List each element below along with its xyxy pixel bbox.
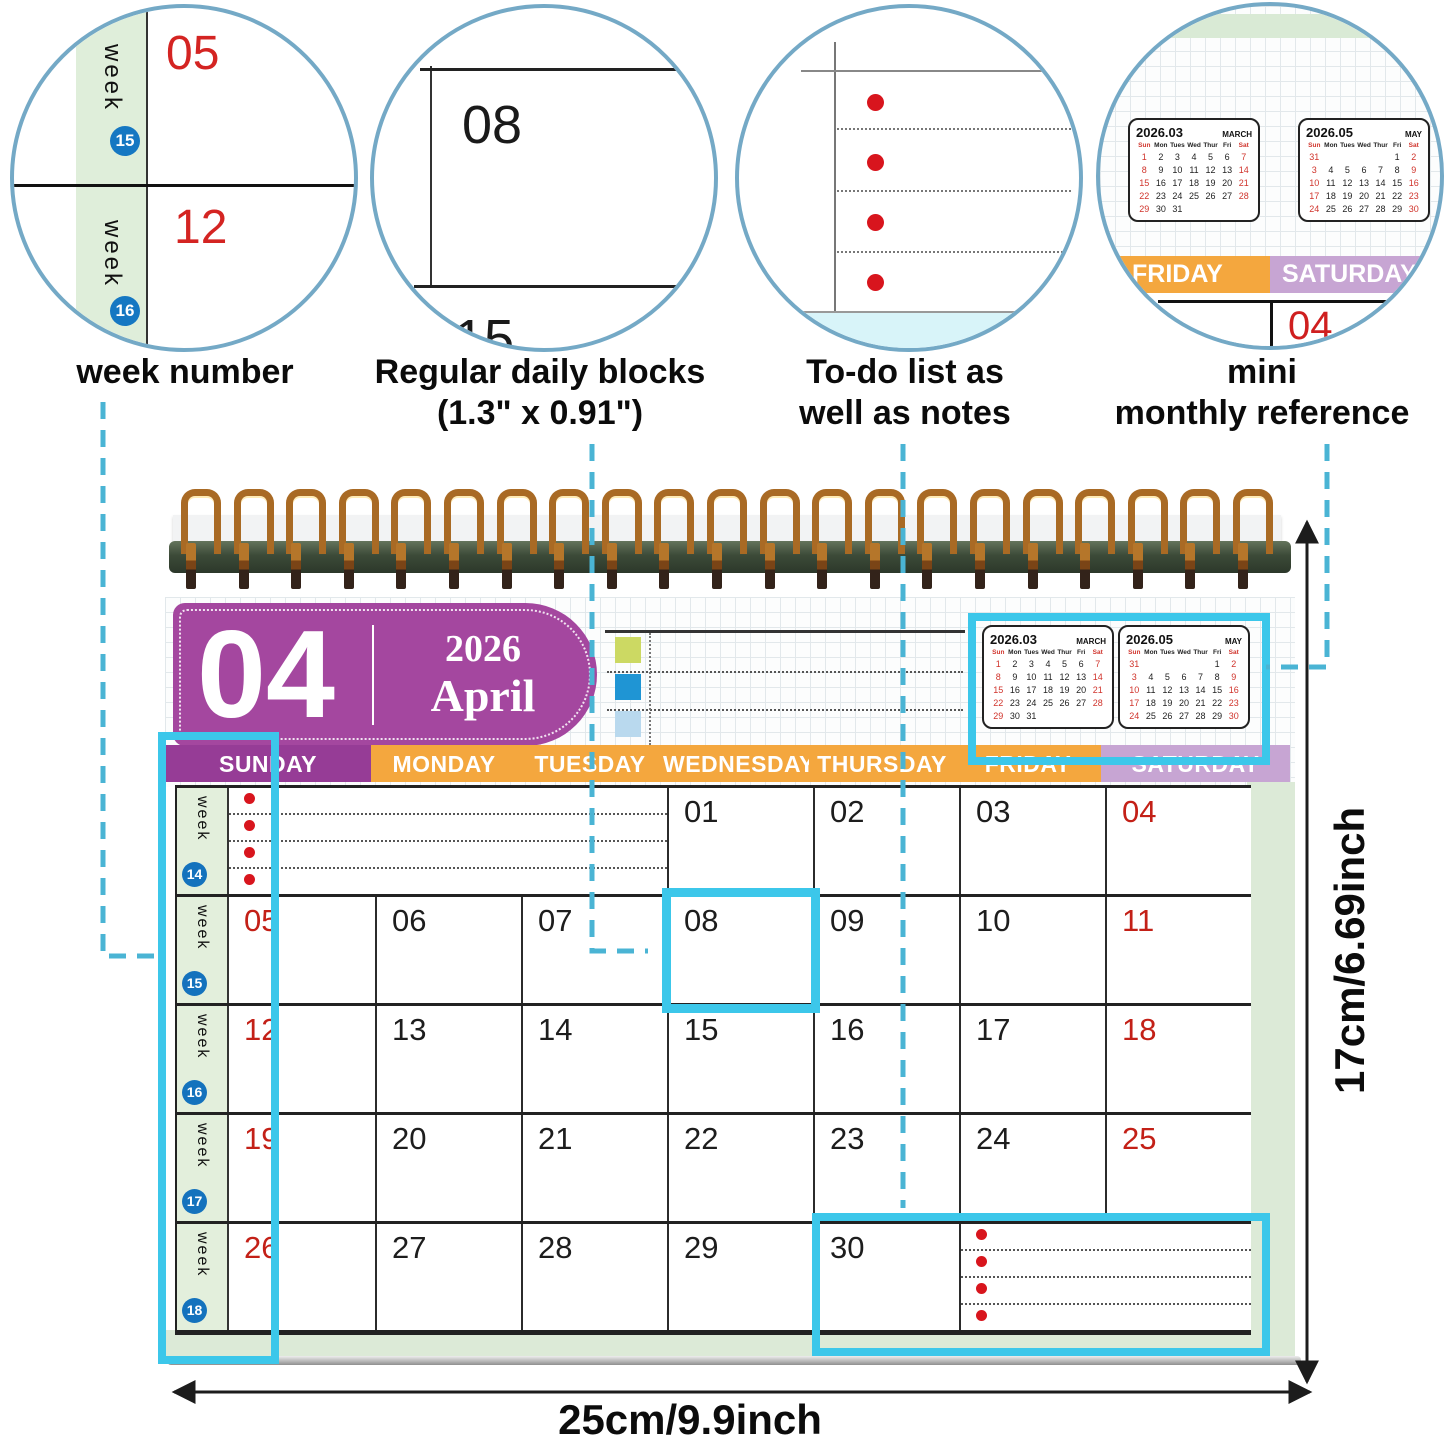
note-line [229,842,667,869]
week-number-badge: 16 [110,296,140,326]
callout-label-week-number: week number [35,352,335,393]
date-cell-20: 20 [375,1115,521,1221]
height-dimension-label: 17cm/6.69inch [1320,640,1380,1260]
highlight-mini-calendars: 2026.03MARCHSunMonTuesWedThurFriSat12345… [968,613,1270,765]
mini-calendar-may: 2026.05MAYSunMonTuesWedThurFriSat3112345… [1118,625,1250,729]
mini-calendar-date-row: 22232425262728 [1136,190,1252,203]
connector-week-number [103,402,154,956]
spiral-loop [391,489,421,589]
date-number: 08 [684,903,718,939]
date-number: 10 [976,903,1010,939]
spiral-loop [1075,489,1105,589]
spiral-loop [707,489,737,589]
week-label: week [98,44,126,112]
week-label: week [98,220,126,288]
mini-calendar-date-row: 891011121314 [1136,164,1252,177]
mini-calendar-date-row: 293031 [1136,203,1252,216]
date-number: 15 [454,308,514,352]
mini-calendar-march: 2026.03MARCHSunMonTuesWedThurFriSat12345… [1128,118,1260,222]
date-number: 12 [174,200,227,255]
callout-circle-daily-blocks: 08 15 [370,4,718,352]
day-header-thursday: THURSDAY [809,745,955,782]
date-number: 16 [830,1012,864,1048]
spiral-loop [1128,489,1158,589]
date-cell-07: 07 [521,897,667,1003]
mini-calendar-weekday-row: SunMonTuesWedThurFriSat [1136,140,1252,151]
date-number: 04 [1288,304,1333,349]
date-cell-03: 03 [959,788,1105,894]
date-cell-23: 23 [813,1115,959,1221]
day-header-friday: FRIDAY [1118,256,1284,293]
grid-line [430,66,432,288]
week-row: week1401020304 [177,788,1249,897]
grid-line [14,184,354,187]
month-pill: 04 2026 April [173,603,597,746]
date-cell-01: 01 [667,788,813,894]
stand-bar [167,1356,1301,1365]
date-number: 28 [538,1230,572,1266]
date-cell-24: 24 [959,1115,1105,1221]
date-cell-22: 22 [667,1115,813,1221]
date-cell-11: 11 [1105,897,1251,1003]
todo-bullet [867,94,884,111]
spiral-loop [1233,489,1263,589]
date-number: 01 [684,794,718,830]
mini-calendar-title: 2026.05 [1126,632,1173,647]
todo-bullet [867,274,884,291]
mini-calendar-date-row: 293031 [990,710,1106,723]
mini-calendar-march: 2026.03MARCHSunMonTuesWedThurFriSat12345… [982,625,1114,729]
note-line [229,788,667,815]
note-line [837,251,1071,253]
mini-calendar-date-row: 10111213141516 [1126,684,1242,697]
mini-calendar-month-name: MARCH [1076,637,1106,646]
grid-line [414,285,694,288]
date-number: 04 [1122,794,1156,830]
note-line [229,869,667,894]
note-line [605,630,965,633]
callout-circle-mini-reference: 2026.03MARCHSunMonTuesWedThurFriSat12345… [1096,2,1444,350]
mini-calendar-date-row: 1234567 [1136,151,1252,164]
spiral-loop [602,489,632,589]
date-number: 18 [1122,1012,1156,1048]
date-number: 15 [684,1012,718,1048]
date-cell-17: 17 [959,1006,1105,1112]
grid-line [1158,300,1416,303]
mini-calendar-date-row: 3112 [1306,151,1422,164]
mini-calendar-date-row: 3456789 [1126,671,1242,684]
mini-calendar-month-name: MAY [1225,637,1242,646]
date-number: 13 [392,1012,426,1048]
spiral-loop [497,489,527,589]
mini-calendar-date-row: 24252627282930 [1126,710,1242,723]
legend-square-green [615,637,641,663]
spiral-loop [181,489,211,589]
highlight-todo-area [812,1213,1270,1356]
grid-line [834,42,836,314]
mini-calendar-date-row: 1234567 [990,658,1106,671]
date-number: 24 [976,1121,1010,1157]
spiral-loop [654,489,684,589]
spiral-loop [760,489,790,589]
mini-calendar-weekday-row: SunMonTuesWedThurFriSat [1306,140,1422,151]
highlight-week-column [158,732,279,1364]
date-number: 17 [976,1012,1010,1048]
date-cell-10: 10 [959,897,1105,1003]
year-label: 2026 [385,627,581,671]
spiral-loop [549,489,579,589]
date-number: 03 [976,794,1010,830]
note-line [607,709,963,711]
date-cell-21: 21 [521,1115,667,1221]
mini-calendar-date-row: 891011121314 [990,671,1106,684]
date-cell-08: 08 [667,897,813,1003]
date-cell-18: 18 [1105,1006,1251,1112]
callout-circle-todo [735,4,1083,352]
week-row: week1612131415161718 [177,1006,1249,1115]
day-header-saturday: SATURDAY [1270,256,1444,293]
date-number: 07 [538,903,572,939]
day-header-monday: MONDAY [371,745,517,782]
spiral-loop [865,489,895,589]
date-number: 23 [830,1121,864,1157]
mini-calendar-date-row: 24252627282930 [1306,203,1422,216]
date-cell-29: 29 [667,1224,813,1330]
calendar-photo: 04 2026 April 2026.03MARCHSunMonTuesWedT… [165,485,1295,1375]
date-cell-13: 13 [375,1006,521,1112]
legend-square-blue [615,674,641,700]
week-row: week1719202122232425 [177,1115,1249,1224]
callout-label-daily-blocks: Regular daily blocks (1.3" x 0.91") [352,352,728,435]
mini-calendar-date-row: 3456789 [1306,164,1422,177]
spiral-loop [812,489,842,589]
note-line [649,633,651,745]
spiral-loop [970,489,1000,589]
mini-calendar-weekday-row: SunMonTuesWedThurFriSat [990,647,1106,658]
spiral-loop [339,489,369,589]
week-row: week1505060708091011 [177,897,1249,1006]
date-number: 22 [684,1121,718,1157]
date-cell-25: 25 [1105,1115,1251,1221]
date-cell-14: 14 [521,1006,667,1112]
width-dimension-label: 25cm/9.9inch [430,1396,950,1444]
grid-line [420,68,714,71]
note-line [229,815,667,842]
todo-bullet [867,154,884,171]
todo-bullet [867,214,884,231]
grid-line [801,70,1079,72]
date-number: 05 [166,26,219,81]
date-cell-27: 27 [375,1224,521,1330]
note-line [837,128,1071,130]
mini-calendar-weekday-row: SunMonTuesWedThurFriSat [1126,647,1242,658]
date-number: 29 [684,1230,718,1266]
mini-calendar-date-row: 22232425262728 [990,697,1106,710]
note-line [837,190,1071,192]
mini-calendar-date-row: 15161718192021 [990,684,1106,697]
mini-calendar-date-row: 17181920212223 [1306,190,1422,203]
mini-calendar-date-row: 10111213141516 [1306,177,1422,190]
date-cell-28: 28 [521,1224,667,1330]
todo-notes-cell [229,788,667,894]
mini-calendar-may: 2026.05MAYSunMonTuesWedThurFriSat3112345… [1298,118,1430,222]
mini-calendar-title: 2026.05 [1306,125,1353,140]
date-number: 02 [830,794,864,830]
legend-square-lightblue [615,711,641,737]
spiral-loop [917,489,947,589]
spiral-loop [286,489,316,589]
spiral-loop [444,489,474,589]
grid-line [1270,300,1273,346]
page-edge [1170,14,1390,38]
date-number: 09 [830,903,864,939]
callout-label-todo: To-do list as well as notes [745,352,1065,435]
mini-calendar-date-row: 3112 [1126,658,1242,671]
date-cell-02: 02 [813,788,959,894]
week-number-badge: 15 [110,126,140,156]
day-header-tuesday: TUESDAY [517,745,663,782]
date-number: 11 [1122,903,1154,939]
month-number: 04 [197,608,335,742]
date-number: 27 [392,1230,426,1266]
note-line [607,671,963,673]
day-header-wednesday: WEDNESDAY [663,745,809,782]
date-number: 08 [462,94,522,156]
spiral-loop [1180,489,1210,589]
mini-calendar-date-row: 17181920212223 [1126,697,1242,710]
mini-calendar-month-name: MARCH [1222,130,1252,139]
date-cell-15: 15 [667,1006,813,1112]
spiral-loop [234,489,264,589]
mini-calendar-date-row: 15161718192021 [1136,177,1252,190]
date-number: 06 [392,903,426,939]
grid-line [146,8,148,348]
date-cell-16: 16 [813,1006,959,1112]
date-cell-04: 04 [1105,788,1251,894]
mini-calendar-title: 2026.03 [990,632,1037,647]
date-number: 20 [392,1121,426,1157]
page-edge [739,311,1079,348]
mini-calendar-title: 2026.03 [1136,125,1183,140]
date-cell-06: 06 [375,897,521,1003]
month-name: April [385,669,581,722]
date-number: 14 [538,1012,572,1048]
mini-calendar-month-name: MAY [1405,130,1422,139]
date-number: 25 [1122,1121,1156,1157]
callout-circle-week-number: week 15 05 week 16 12 [10,4,358,352]
divider [372,625,374,725]
callout-label-mini-reference: mini monthly reference [1080,352,1444,435]
date-number: 21 [538,1121,572,1157]
date-cell-09: 09 [813,897,959,1003]
spiral-loop [1023,489,1053,589]
